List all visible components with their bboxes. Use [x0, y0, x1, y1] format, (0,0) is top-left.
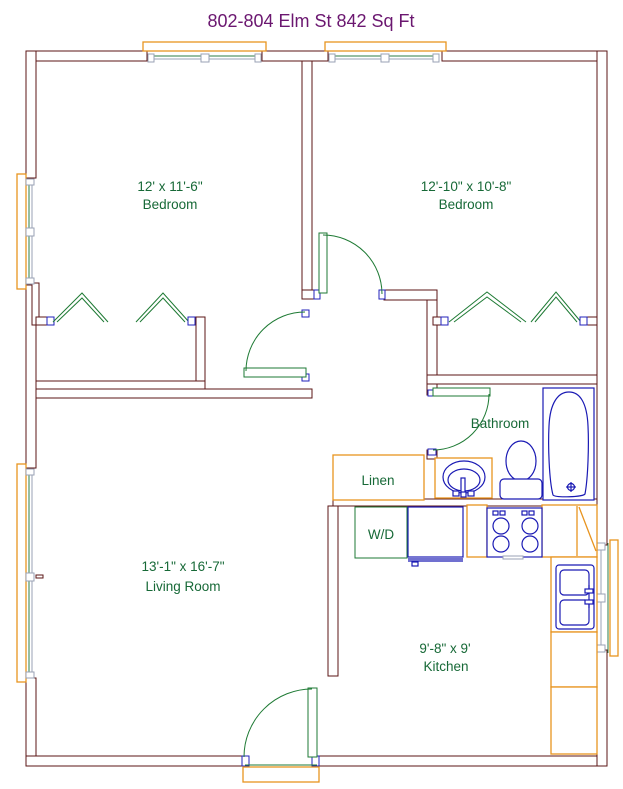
living-room-name: Living Room	[145, 579, 220, 594]
bedroom-left-name: Bedroom	[143, 197, 198, 212]
bathroom-name: Bathroom	[471, 416, 530, 431]
entry-stoop	[243, 767, 319, 782]
front-entry-door	[242, 688, 319, 782]
oven-handle	[503, 556, 523, 559]
window-top-right	[325, 42, 446, 62]
floor-plan-drawing: 802-804 Elm St 842 Sq Ft	[0, 0, 623, 789]
living-room-dimensions: 13'-1" x 16'-7"	[141, 559, 224, 574]
interior-walls	[32, 61, 597, 676]
outer-walls	[26, 51, 607, 766]
window-left-bedroom	[17, 174, 34, 289]
bathroom-vanity	[435, 458, 492, 498]
kitchen-sink	[556, 565, 594, 629]
bedroom-right-name: Bedroom	[439, 197, 494, 212]
washer-dryer-unit	[408, 507, 463, 566]
linen-name: Linen	[361, 473, 394, 488]
right-closet-bifold-doors	[441, 292, 587, 325]
faucet	[585, 589, 593, 593]
window-left-living	[17, 464, 43, 682]
kitchen-name: Kitchen	[423, 659, 468, 674]
window-kitchen-right	[597, 540, 618, 656]
washer-dryer-name: W/D	[368, 527, 394, 542]
window-top-left	[143, 42, 266, 62]
right-bedroom-door	[314, 233, 385, 299]
left-closet-bifold-doors	[47, 293, 195, 325]
left-bedroom-door	[244, 310, 309, 381]
bathtub	[543, 388, 594, 500]
bedroom-left-dimensions: 12' x 11'-6"	[137, 179, 202, 194]
bedroom-right-dimensions: 12'-10" x 10'-8"	[421, 179, 512, 194]
toilet	[500, 441, 542, 499]
floor-plan-page: 802-804 Elm St 842 Sq Ft	[0, 0, 623, 789]
kitchen-dimensions: 9'-8" x 9'	[419, 641, 470, 656]
stove	[487, 508, 542, 559]
plan-title: 802-804 Elm St 842 Sq Ft	[207, 11, 414, 31]
